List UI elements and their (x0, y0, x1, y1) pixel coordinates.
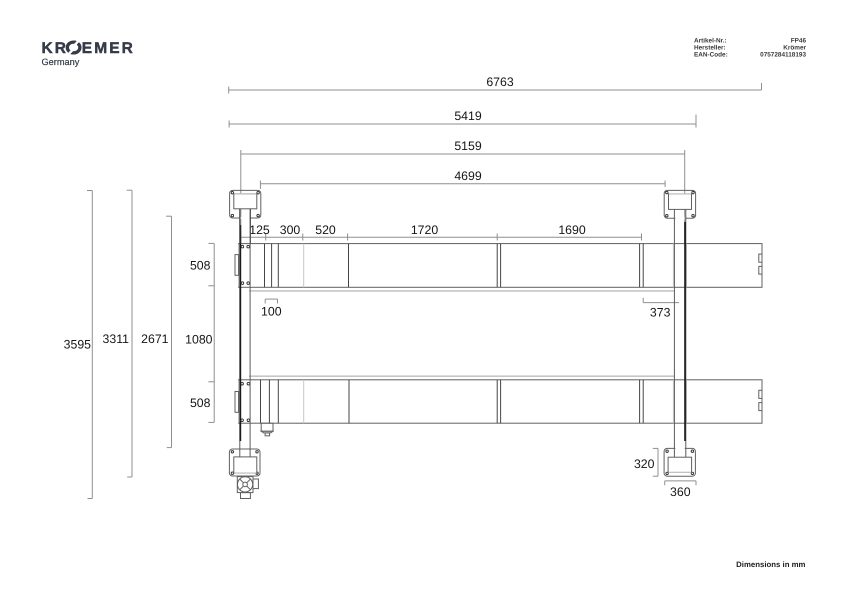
svg-text:100: 100 (261, 304, 282, 318)
svg-text:508: 508 (190, 396, 211, 410)
svg-text:1720: 1720 (411, 223, 439, 237)
svg-text:508: 508 (190, 259, 211, 273)
svg-text:2671: 2671 (141, 332, 169, 346)
svg-text:1080: 1080 (185, 333, 213, 347)
svg-text:5159: 5159 (454, 139, 482, 153)
svg-text:1690: 1690 (558, 223, 586, 237)
svg-text:EAN-Code:: EAN-Code: (694, 52, 728, 59)
svg-text:KR: KR (42, 40, 69, 57)
svg-text:3595: 3595 (64, 338, 92, 352)
svg-text:0757284118193: 0757284118193 (760, 52, 806, 59)
svg-text:EMER: EMER (82, 40, 135, 57)
svg-text:FP46: FP46 (791, 38, 807, 45)
svg-text:125: 125 (249, 223, 270, 237)
svg-text:Artikel-Nr.:: Artikel-Nr.: (694, 38, 727, 45)
svg-text:6763: 6763 (486, 75, 514, 89)
svg-text:300: 300 (280, 223, 301, 237)
svg-text:320: 320 (634, 457, 655, 471)
svg-text:Dimensions in mm: Dimensions in mm (736, 560, 805, 569)
svg-text:373: 373 (650, 306, 671, 320)
svg-text:360: 360 (670, 485, 691, 499)
svg-text:Krömer: Krömer (783, 45, 806, 52)
svg-text:3311: 3311 (103, 332, 130, 346)
svg-text:5419: 5419 (454, 109, 482, 123)
svg-text:Germany: Germany (42, 57, 80, 67)
svg-text:520: 520 (315, 223, 336, 237)
svg-text:4699: 4699 (454, 169, 482, 183)
svg-text:Hersteller:: Hersteller: (694, 45, 726, 52)
